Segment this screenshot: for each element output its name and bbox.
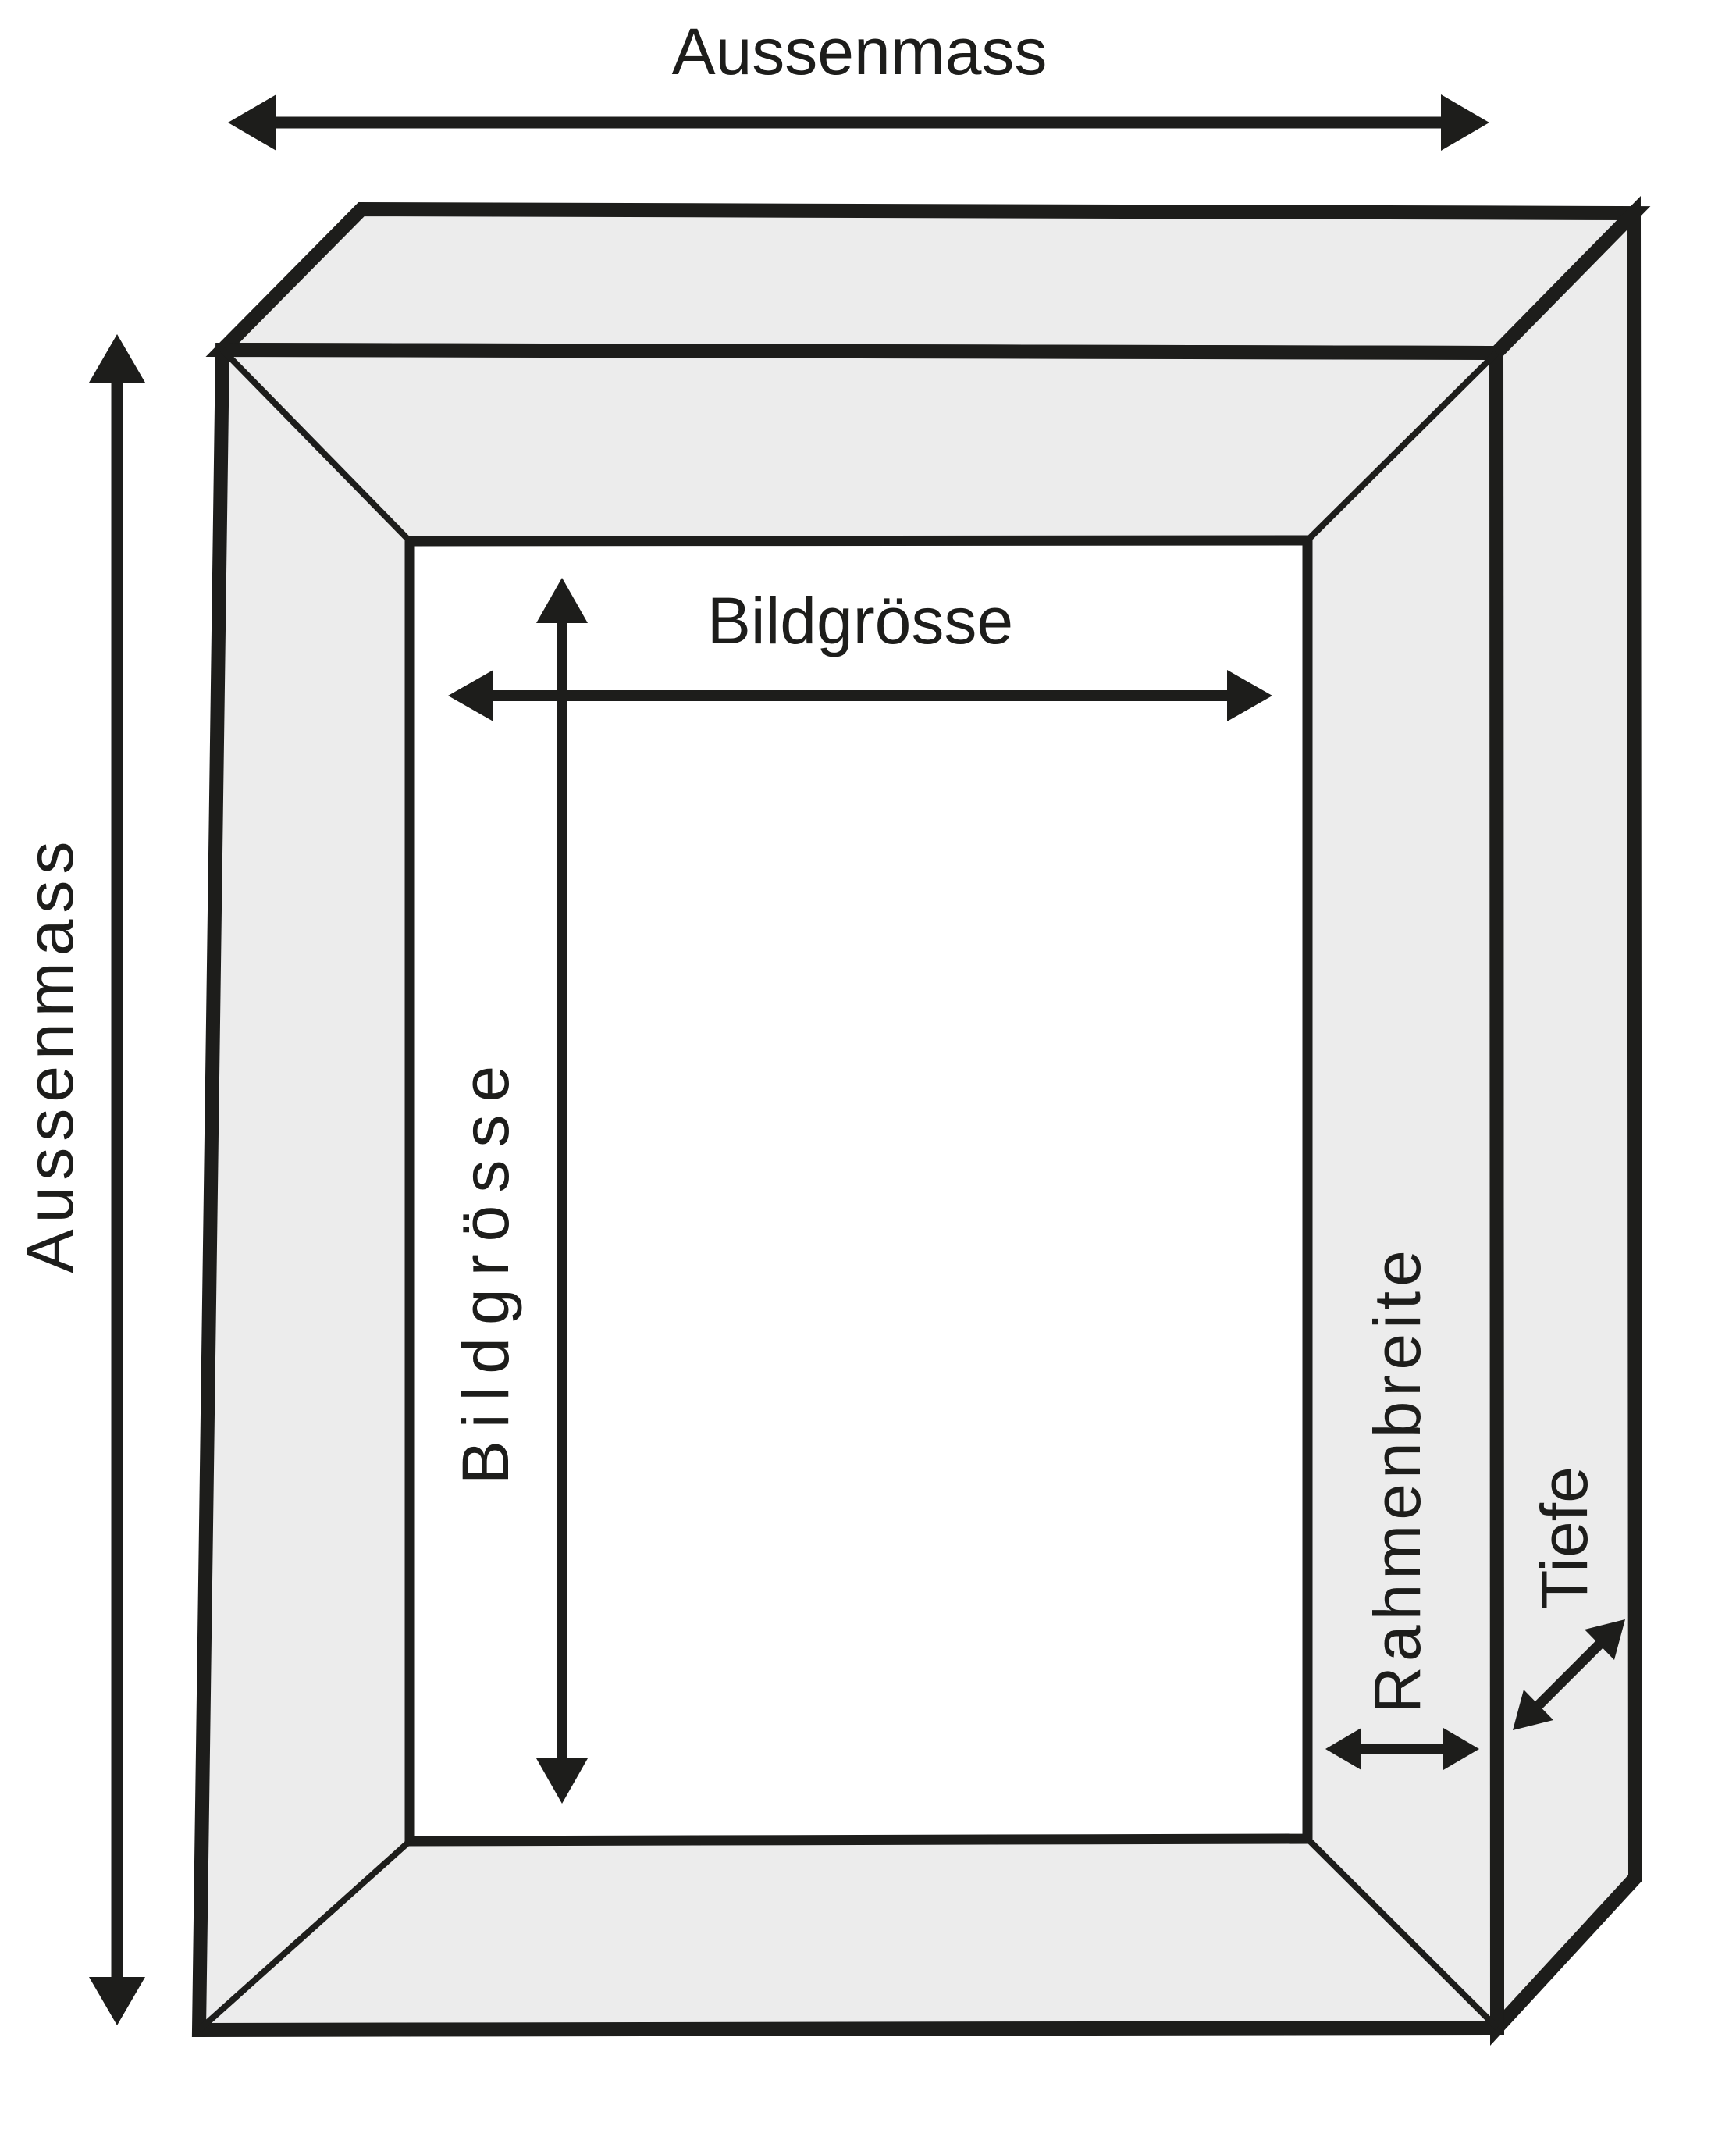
depth-label: Tiefe [1528, 1466, 1601, 1610]
diagram-canvas: Aussenmass Aussenmass Bildgrösse Bildgrö… [0, 0, 1736, 2130]
frame-top-face [222, 209, 1634, 353]
frame-opening [410, 540, 1307, 1841]
outer-height-label: Aussenmass [13, 835, 87, 1273]
arrow-head-right-icon [1441, 94, 1489, 151]
arrow-head-up-icon [89, 334, 145, 383]
image-width-label: Bildgrösse [707, 584, 1013, 657]
image-height-label: Bildgrösse [449, 1053, 522, 1484]
outer-width-arrow [228, 94, 1489, 151]
frame-right-face [1496, 213, 1635, 2028]
frame-3d-body [199, 209, 1635, 2030]
outer-height-arrow [89, 334, 145, 2025]
outer-width-label: Aussenmass [672, 15, 1048, 88]
picture-frame-dimension-diagram: Aussenmass Aussenmass Bildgrösse Bildgrö… [0, 0, 1736, 2130]
arrow-head-left-icon [228, 94, 276, 151]
arrow-head-down-icon [89, 1977, 145, 2025]
frame-border-width-label: Rahmenbreite [1361, 1245, 1434, 1714]
